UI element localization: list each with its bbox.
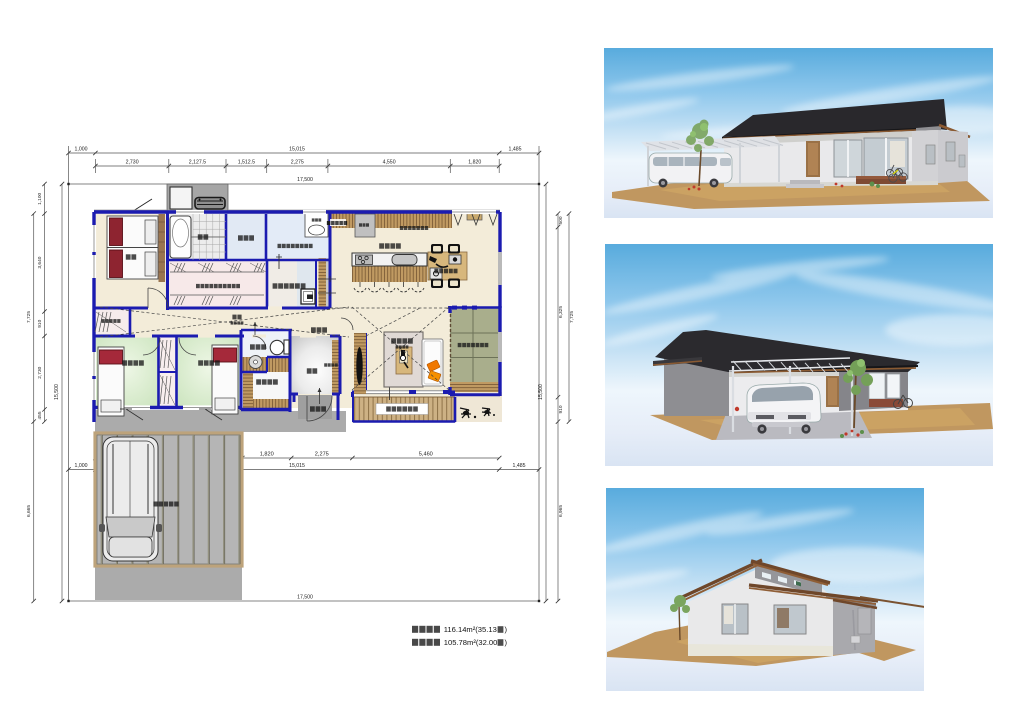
svg-text:1,100: 1,100	[37, 192, 43, 204]
svg-text:15,015: 15,015	[289, 463, 305, 469]
svg-text:3,640: 3,640	[37, 256, 43, 268]
svg-text:2,275: 2,275	[315, 452, 329, 458]
svg-text:455: 455	[37, 411, 43, 419]
svg-text:7,725: 7,725	[26, 311, 32, 323]
svg-text:15,015: 15,015	[289, 147, 305, 153]
svg-text:6,325: 6,325	[558, 306, 564, 318]
svg-text:17,500: 17,500	[297, 595, 313, 601]
svg-text:2,127.5: 2,127.5	[189, 160, 206, 166]
svg-text:1,512.5: 1,512.5	[238, 160, 255, 166]
svg-text:1,820: 1,820	[260, 452, 274, 458]
svg-text:1,000: 1,000	[75, 147, 88, 153]
svg-text:7,725: 7,725	[569, 311, 575, 323]
svg-text:17,500: 17,500	[297, 177, 313, 183]
svg-text:1,000: 1,000	[75, 463, 88, 469]
svg-text:1,485: 1,485	[513, 463, 526, 469]
svg-text:105.78m²(32.00: 105.78m²(32.00	[444, 638, 498, 647]
svg-text:4,550: 4,550	[383, 160, 396, 166]
svg-text:2,730: 2,730	[37, 366, 43, 378]
svg-text:500: 500	[558, 216, 564, 224]
svg-text:6,665: 6,665	[26, 505, 32, 517]
svg-text:1,820: 1,820	[468, 160, 481, 166]
svg-text:5,460: 5,460	[419, 452, 433, 458]
svg-text:910: 910	[558, 405, 564, 413]
svg-text:116.14m²(35.13: 116.14m²(35.13	[444, 625, 497, 634]
svg-text:2,730: 2,730	[126, 160, 139, 166]
svg-text:15,500: 15,500	[538, 384, 544, 400]
svg-text:910: 910	[37, 319, 43, 327]
svg-text:6,965: 6,965	[558, 505, 564, 517]
svg-text:2,275: 2,275	[291, 160, 304, 166]
svg-text:1,485: 1,485	[509, 147, 522, 153]
svg-text:15,500: 15,500	[54, 384, 60, 400]
